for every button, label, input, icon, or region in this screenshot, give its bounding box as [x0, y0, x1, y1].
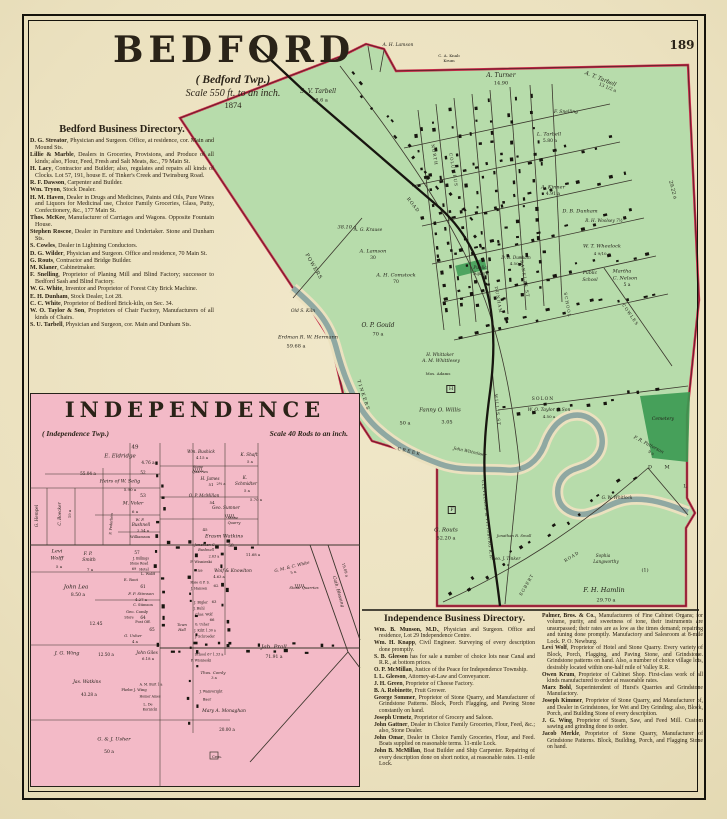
map-label: W. O. Taylor & Son	[528, 409, 571, 414]
independence-title: INDEPENDENCE	[38, 399, 352, 420]
directory-entry: Wm. H. Knapp, Civil Engineer. Surveying …	[374, 640, 535, 653]
directory-entry: I. L. Gleeson, Attorney-at-Law and Conve…	[374, 674, 535, 680]
bedford-directory-entries: D. G. Streator, Physician and Surgeon. O…	[30, 138, 214, 329]
map-label: 5 a	[624, 284, 631, 289]
map-label: W. T. Wheelock	[583, 245, 621, 250]
map-label: 5.80 a	[543, 140, 557, 145]
map-label: 52.20 a	[437, 537, 456, 542]
directory-entry: W. G. White, Inventor and Proprietor of …	[30, 286, 214, 293]
bedford-heading: BEDFORD ( Bedford Twp.) Scale 550 ft. to…	[113, 32, 353, 110]
map-label: Public	[583, 272, 597, 277]
directory-entry: J. G. Wing, Proprietor of Steam, Saw, an…	[542, 718, 703, 731]
map-label: ROAD	[405, 198, 420, 215]
map-label: G. W. Whitlock	[602, 496, 633, 500]
map-label: C. A. Knab	[438, 54, 459, 58]
directory-entry: Marx Bohl, Superintendent of Hurst's Qua…	[542, 685, 703, 698]
directory-entry: H. M. Haven, Dealer in Drugs and Medicin…	[30, 195, 214, 215]
independence-subheading-row: ( Independence Twp.) Scale 40 Rods to an…	[38, 429, 352, 438]
map-label: C. Nelson	[613, 277, 638, 282]
directory-entry: Joseph Urmetz, Proprietor of Grocery and…	[374, 715, 535, 721]
directory-entry: H. Lacy, Contractor and Builder; also, r…	[30, 166, 214, 179]
independence-directory-left-entries: Wm. B. Munson, M.D., Physician and Surge…	[374, 627, 535, 767]
map-label: Square	[473, 272, 488, 276]
directory-entry: S. U. Tarbell, Physician and Surgeon, co…	[30, 322, 214, 329]
map-label: 30	[370, 257, 376, 262]
map-label: EGBERT	[519, 573, 535, 596]
map-label: CREEK	[397, 448, 422, 458]
directory-entry: Wm. B. Munson, M.D., Physician and Surge…	[374, 627, 535, 640]
map-label: 4.50 a	[543, 415, 556, 419]
map-label: 3 a	[503, 563, 509, 567]
directory-entry: F. Snelling, Proprietor of Planing Mill …	[30, 272, 214, 285]
map-label: CLEVELAND & PITTSBURG R.R.	[481, 480, 493, 561]
directory-entry: S. Cowles, Dealer in Lightning Conductor…	[30, 243, 214, 250]
public-square-area	[455, 259, 487, 277]
map-label: John Wittmisser	[453, 446, 487, 457]
map-label: Fanny O. Willis	[419, 408, 461, 414]
directory-entry: Owen Krum, Proprietor of Cabinet Shop. F…	[542, 672, 703, 685]
map-label: D. B. Dunham	[501, 256, 531, 260]
map-label: SOLON	[532, 398, 554, 403]
map-label: A. Turner	[486, 73, 515, 79]
map-label: 13 1/2 a	[598, 83, 617, 94]
map-label: 14.90	[494, 82, 508, 87]
directory-entry: Levi Wolf, Proprietor of Hotel and Stone…	[542, 645, 703, 671]
directory-entry: W. O. Taylor & Son, Proprietors of Chair…	[30, 308, 214, 321]
directory-entry: Stephen Roscoe, Dealer in Furniture and …	[30, 229, 214, 242]
cemetery-area	[640, 392, 690, 462]
map-label: R. H. Woolsey 7½	[585, 219, 623, 223]
map-label: F. R. Patterson	[632, 436, 664, 456]
map-label: Mos. Adams	[426, 372, 451, 376]
bedford-buildings	[351, 71, 659, 596]
map-label: F	[448, 506, 456, 514]
map-label: 59.68 a	[287, 345, 306, 350]
directory-entry: Wm. Tryon, Stock Dealer.	[30, 187, 214, 194]
map-label: Sophia	[596, 554, 611, 558]
map-label: Public	[473, 266, 486, 270]
map-label: Cemetery	[652, 418, 674, 423]
map-label: L	[683, 485, 686, 490]
map-label: H	[446, 385, 455, 393]
bedford-business-directory: Bedford Business Directory. D. G. Streat…	[30, 124, 214, 330]
map-label: O. P. Gould	[361, 323, 394, 329]
map-label: A. T. Tarbell	[584, 71, 617, 89]
map-label: 9 a	[647, 450, 654, 456]
map-label: Langworthy	[593, 560, 619, 564]
map-label: (1)	[641, 569, 648, 574]
map-label: COWLES	[621, 303, 639, 326]
map-label: 4.50 a	[510, 262, 523, 266]
map-label: ROAD	[564, 551, 581, 564]
map-label: 38.10 a	[338, 226, 357, 231]
map-label: Geo. J. Tinker	[492, 557, 521, 561]
map-label: DUNHAM	[494, 286, 503, 314]
map-label: POWERS	[303, 253, 322, 281]
map-label: WILLIS ST	[493, 394, 501, 426]
directory-entry: Palmer, Bros. & Co., Manufacturers of Fi…	[542, 613, 703, 645]
map-label: 4.91 a	[546, 193, 560, 198]
map-label: D	[648, 466, 652, 471]
map-label: F. H. Hamlin	[583, 587, 624, 594]
map-label: L. Tarbell	[537, 133, 561, 138]
map-label: M	[664, 466, 669, 471]
directory-entry: John B. McMillan, Boat Builder and Ship …	[374, 748, 535, 767]
map-label: Old S. Kiln	[291, 310, 315, 315]
directory-entry: Lillie & Marble, Dealers in Groceries, P…	[30, 152, 214, 165]
directory-entry: D. G. Streator, Physician and Surgeon. O…	[30, 138, 214, 151]
map-label: 4 9/10 a	[594, 252, 610, 256]
independence-scale-note: Scale 40 Rods to an inch.	[270, 429, 348, 438]
independence-heading: INDEPENDENCE	[38, 399, 352, 420]
independence-subtitle: ( Independence Twp.)	[42, 429, 109, 438]
directory-entry: Jacob Merkle, Proprietor of Stone Quarry…	[542, 731, 703, 750]
map-label: A. G. Krause	[354, 229, 382, 234]
map-label: 50 a	[400, 422, 411, 427]
atlas-page: A. H. LamsonC. A. KnabKrumA. Turner14.90…	[0, 0, 727, 819]
map-label: 29.70 a	[597, 599, 616, 604]
directory-entry: S. B. Gleeson has for sale a number of c…	[374, 654, 535, 667]
map-label: G. Routs	[434, 528, 458, 534]
page-number: 189	[662, 38, 702, 52]
bedford-directory-title: Bedford Business Directory.	[30, 124, 214, 135]
bedford-scale-note: Scale 550 ft. to an inch.	[113, 88, 353, 99]
independence-directory-title: Independence Business Directory.	[374, 613, 535, 624]
directory-entry: D. G. Wilder, Physician and Surgeon. Off…	[30, 251, 214, 258]
map-label: School	[582, 279, 597, 284]
directory-entry: J. H. Green, Proprietor of Cheese Factor…	[374, 681, 535, 687]
map-label: Martha	[613, 270, 632, 275]
map-label: H. Whittaker	[426, 353, 454, 357]
directory-entry: John Gattner, Dealer in Choice Family Gr…	[374, 722, 535, 735]
independence-map	[30, 393, 360, 787]
map-label: A. H. Comstock	[376, 274, 415, 279]
map-label: F. Snelling	[554, 111, 578, 116]
map-label: A. M. Whittlesey	[422, 360, 460, 365]
directory-entry: R. F. Dawson, Carpenter and Builder.	[30, 180, 214, 187]
map-label: 70	[393, 281, 399, 286]
directory-entry: Thos. McKee, Manufacturer of Carriages a…	[30, 215, 214, 228]
map-label: 29.22 a	[667, 180, 677, 200]
independence-directory-right-entries: Palmer, Bros. & Co., Manufacturers of Fi…	[542, 613, 703, 750]
map-label: Jonathan R. Small	[497, 534, 532, 538]
bedford-year: 1874	[113, 100, 353, 110]
directory-entry: E. H. Dunham, Stock Dealer, Lot 28.	[30, 294, 214, 301]
map-label: A. Lamson	[360, 250, 387, 255]
map-label: Krum	[443, 59, 454, 63]
directory-entry: B. A. Robinette, Fruit Grower.	[374, 688, 535, 694]
directory-entry: O. P. McMillan, Justice of the Peace for…	[374, 667, 535, 673]
bedford-title: BEDFORD	[113, 32, 353, 68]
map-label: 3.05	[441, 421, 452, 426]
map-label: FRANKLIN ST	[518, 256, 529, 298]
map-label: SCHOOL	[563, 292, 572, 318]
map-label: NORTH	[430, 144, 438, 166]
map-label: A. H. Lamson	[383, 44, 414, 49]
map-label: A. Kinner	[541, 186, 565, 191]
map-label: COLUMBUS	[448, 153, 458, 188]
independence-business-directory: Independence Business Directory. Wm. B. …	[374, 613, 704, 768]
directory-entry: John Omar, Dealer in Choice Family Groce…	[374, 735, 535, 748]
map-label: D. B. Dunham	[562, 210, 597, 215]
independence-directory-left-column: Independence Business Directory. Wm. B. …	[374, 613, 535, 768]
directory-entry: M. Klaner, Cabinetmaker.	[30, 265, 214, 272]
directory-entry: Joseph Kimmer, Proprietor of Stone Quarr…	[542, 698, 703, 717]
directory-entry: C. C. White, Proprietor of Bedford Brick…	[30, 301, 214, 308]
bedford-subtitle: ( Bedford Twp.)	[113, 74, 353, 86]
map-label: 70 a	[373, 333, 384, 338]
map-label: Erdman R. W. Hermann	[278, 336, 338, 341]
independence-directory-right-column: Palmer, Bros. & Co., Manufacturers of Fi…	[542, 613, 703, 768]
directory-entry: G. Routs, Contractor and Bridge Builder.	[30, 258, 214, 265]
directory-entry: George Sommer, Proprietor of Stone Quarr…	[374, 695, 535, 714]
